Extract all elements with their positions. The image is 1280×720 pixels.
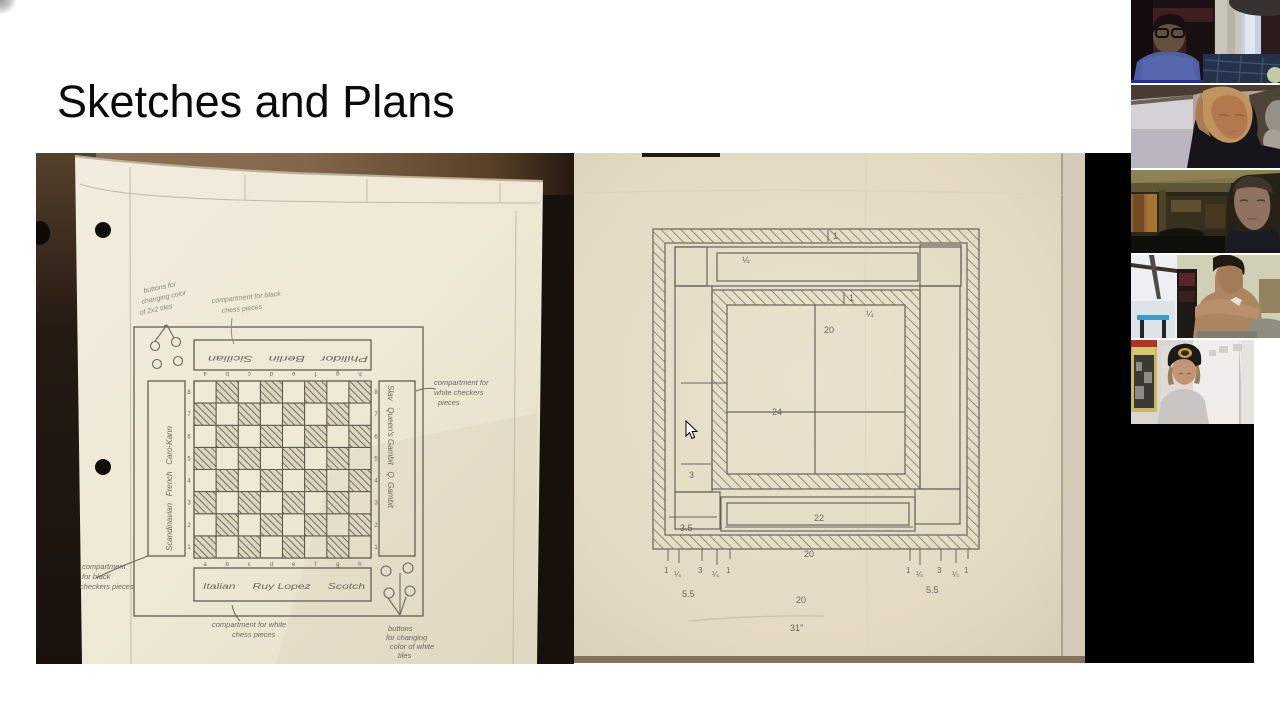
- svg-text:1: 1: [833, 231, 838, 241]
- svg-text:for changing: for changing: [386, 633, 428, 642]
- svg-text:compartment: compartment: [82, 562, 127, 571]
- svg-text:pieces: pieces: [437, 398, 460, 407]
- svg-text:31'': 31'': [790, 623, 804, 633]
- svg-text:compartment for: compartment for: [434, 378, 489, 387]
- svg-text:¼: ¼: [742, 255, 750, 265]
- svg-text:5.5: 5.5: [926, 585, 939, 595]
- svg-text:1: 1: [664, 566, 669, 575]
- svg-text:22: 22: [814, 513, 824, 523]
- svg-text:h: h: [358, 370, 361, 376]
- svg-text:compartment for white: compartment for white: [212, 620, 286, 629]
- svg-text:Italian Ruy Lopez Scot: Italian Ruy Lopez Scotch: [203, 582, 366, 591]
- svg-text:tiles: tiles: [398, 651, 412, 660]
- svg-text:chess pieces: chess pieces: [232, 630, 276, 639]
- svg-text:3: 3: [698, 566, 703, 575]
- svg-text:3.5: 3.5: [680, 523, 693, 533]
- svg-text:Scandinavian French Caro-K: Scandinavian French Caro-Kann: [165, 425, 174, 551]
- svg-text:1: 1: [906, 566, 911, 575]
- svg-text:¼: ¼: [916, 570, 923, 579]
- svg-text:white checkers: white checkers: [434, 388, 484, 397]
- svg-text:for black: for black: [82, 572, 112, 581]
- svg-text:24: 24: [772, 407, 782, 417]
- svg-text:c: c: [248, 370, 251, 376]
- svg-text:d: d: [270, 370, 273, 376]
- svg-text:Slav Queen's Gambit Q. Gam: Slav Queen's Gambit Q. Gambit: [386, 385, 395, 509]
- svg-text:20: 20: [796, 595, 806, 605]
- svg-text:¼: ¼: [866, 309, 874, 319]
- svg-text:d: d: [270, 562, 273, 568]
- svg-text:¼: ¼: [712, 570, 719, 579]
- svg-text:20: 20: [824, 325, 834, 335]
- svg-text:1: 1: [849, 293, 854, 303]
- svg-text:Philidor Berlin Sicilian: Philidor Berlin Sicilian: [207, 354, 368, 363]
- svg-text:g: g: [336, 370, 339, 376]
- svg-text:5.5: 5.5: [682, 589, 695, 599]
- svg-text:¼: ¼: [674, 570, 681, 579]
- svg-text:checkers pieces: checkers pieces: [80, 582, 134, 591]
- svg-text:h: h: [358, 562, 361, 568]
- svg-text:1: 1: [726, 566, 731, 575]
- svg-text:c: c: [248, 562, 251, 568]
- svg-text:color of white: color of white: [390, 642, 434, 651]
- svg-text:20: 20: [804, 549, 814, 559]
- svg-text:1: 1: [964, 566, 969, 575]
- svg-text:3: 3: [689, 470, 694, 480]
- svg-text:g: g: [336, 562, 339, 568]
- svg-text:buttons: buttons: [388, 624, 413, 633]
- svg-text:¼: ¼: [952, 570, 959, 579]
- svg-text:3: 3: [937, 566, 942, 575]
